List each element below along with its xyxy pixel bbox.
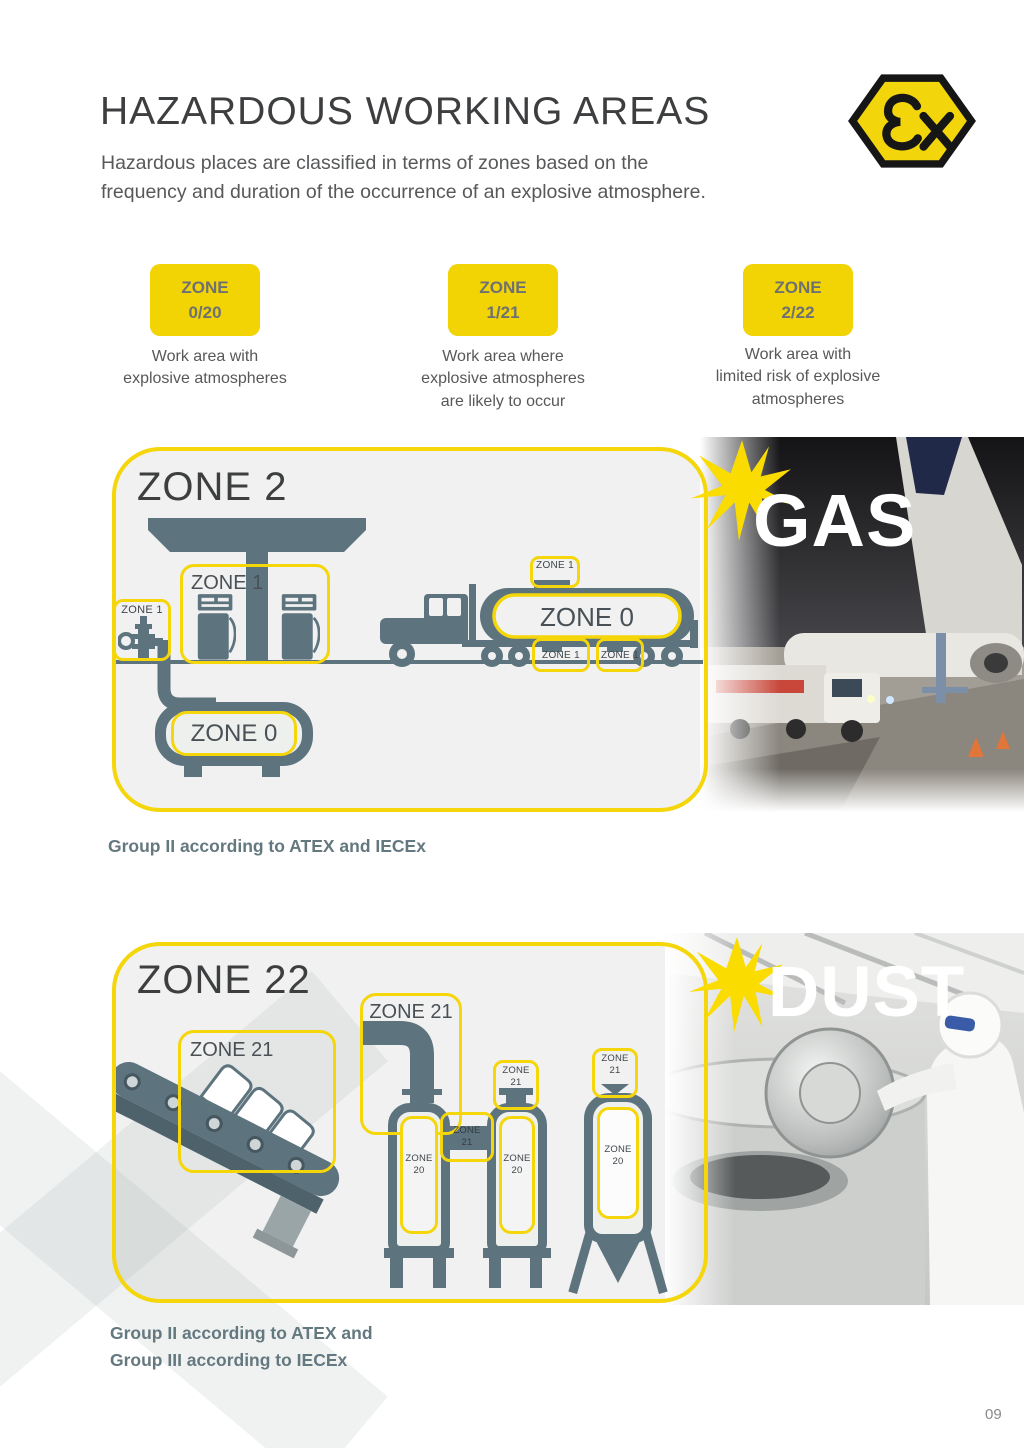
silo-1-zone-box: ZONE 20 <box>400 1116 438 1234</box>
zone-badge-title: ZONE <box>774 275 821 301</box>
atex-ex-logo-icon <box>846 60 978 182</box>
tanker-outlet-zone-label-right: ZONE 1 <box>596 650 644 661</box>
hopper-funnel-icon <box>601 1084 629 1095</box>
zone-badge-1-21: ZONE 1/21 <box>448 264 558 336</box>
silo-2-zone-label: ZONE 20 <box>503 1153 530 1231</box>
tanker-hatch-zone-label: ZONE 1 <box>530 560 580 571</box>
zone-badge-value: 0/20 <box>188 300 221 326</box>
zone-badge-value: 2/22 <box>781 300 814 326</box>
tanker-tank-zone-label: ZONE 0 <box>540 602 634 633</box>
tanker-outlet-zone-label-left: ZONE 1 <box>532 650 590 661</box>
gas-photo-word: GAS <box>753 478 916 563</box>
silo-2-leg <box>489 1256 501 1288</box>
hopper-cone <box>596 1241 640 1283</box>
wellhead-zone-label: ZONE 1 <box>113 604 171 616</box>
pipe-zone-label: ZONE 21 <box>360 1001 462 1024</box>
zone-badge-description: Work area with limited risk of explosive… <box>688 344 908 411</box>
hopper-top-zone-label: ZONE 21 <box>592 1053 638 1077</box>
pumps-zone-label: ZONE 1 <box>191 572 263 595</box>
dust-panel-title: ZONE 22 <box>137 958 311 1003</box>
zone-badge-title: ZONE <box>181 275 228 301</box>
dust-photo-word: DUST <box>768 952 965 1033</box>
page-subtitle: Hazardous places are classified in terms… <box>101 149 706 207</box>
document-page: HAZARDOUS WORKING AREAS Hazardous places… <box>0 0 1024 1448</box>
silo-1-leg <box>390 1256 403 1288</box>
silo-2-zone-box: ZONE 20 <box>499 1116 535 1234</box>
page-title: HAZARDOUS WORKING AREAS <box>100 90 710 134</box>
zone-badge-value: 1/21 <box>486 300 519 326</box>
underground-tank-zone-label: ZONE 0 <box>191 720 278 748</box>
tank-leg <box>184 764 202 777</box>
silo-2-top-zone-label: ZONE 21 <box>493 1065 539 1089</box>
conveyor-zone-label: ZONE 21 <box>190 1039 273 1062</box>
dust-panel-caption: Group II according to ATEX and Group III… <box>110 1320 373 1374</box>
zone-badge-description: Work area with explosive atmospheres <box>95 346 315 391</box>
silo-1-zone-label: ZONE 20 <box>405 1153 432 1231</box>
hopper-zone-label: ZONE 20 <box>604 1144 631 1216</box>
hopper-zone-box: ZONE 20 <box>597 1107 639 1219</box>
tank-leg <box>262 764 280 777</box>
zone-badge-description: Work area where explosive atmospheres ar… <box>393 346 613 413</box>
gas-panel-caption: Group II according to ATEX and IECEx <box>108 833 426 860</box>
connector-zone-label: ZONE 21 <box>453 1125 480 1149</box>
silo-1-leg <box>433 1256 446 1288</box>
zone-badge-0-20: ZONE 0/20 <box>150 264 260 336</box>
underground-tank-zone-box: ZONE 0 <box>171 711 297 756</box>
gas-panel-title: ZONE 2 <box>137 465 287 510</box>
zone-badge-title: ZONE <box>479 275 526 301</box>
connector-zone-box: ZONE 21 <box>440 1112 494 1162</box>
tanker-tank-zone-label-wrap: ZONE 0 <box>498 597 676 637</box>
zone-badge-2-22: ZONE 2/22 <box>743 264 853 336</box>
page-number: 09 <box>985 1406 1002 1423</box>
silo-2-leg <box>530 1256 542 1288</box>
